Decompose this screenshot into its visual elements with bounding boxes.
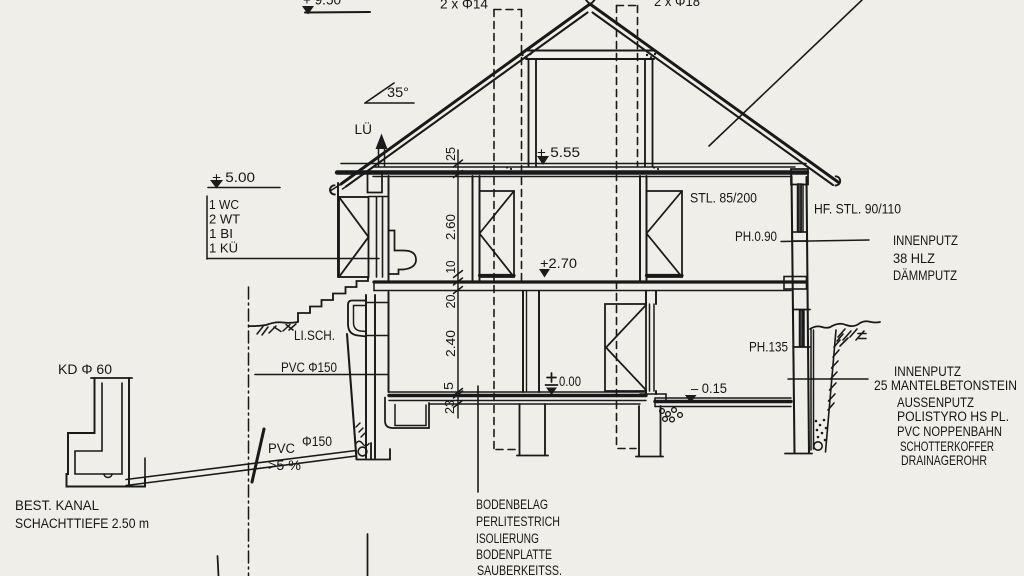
svg-text:DÄMMPUTZ: DÄMMPUTZ: [893, 268, 957, 283]
svg-text:KD Φ 60: KD Φ 60: [58, 362, 112, 377]
svg-text:DRAINAGEROHR: DRAINAGEROHR: [901, 453, 987, 468]
svg-text:23: 23: [443, 400, 457, 414]
svg-text:PVC Φ150: PVC Φ150: [281, 360, 337, 375]
svg-text:2 x Φ18: 2 x Φ18: [654, 0, 700, 9]
svg-text:35°: 35°: [387, 85, 409, 100]
svg-text:LI.SCH.: LI.SCH.: [294, 328, 335, 343]
svg-text:BODENBELAG: BODENBELAG: [476, 497, 548, 512]
svg-text:INNENPUTZ: INNENPUTZ: [894, 364, 961, 379]
svg-text:HF. STL. 90/110: HF. STL. 90/110: [814, 202, 901, 217]
svg-text:>5 %: >5 %: [268, 458, 301, 473]
svg-text:AUSSENPUTZ: AUSSENPUTZ: [897, 395, 974, 410]
svg-text:25: 25: [444, 147, 458, 161]
svg-text:INNENPUTZ: INNENPUTZ: [893, 233, 958, 248]
svg-text:LÜ: LÜ: [355, 122, 373, 137]
svg-text:PVC: PVC: [268, 441, 295, 456]
svg-text:PERLITESTRICH: PERLITESTRICH: [476, 514, 560, 529]
svg-text:1 KÜ: 1 KÜ: [209, 242, 238, 256]
svg-text:1 BI: 1 BI: [209, 227, 233, 241]
svg-text:PVC NOPPENBAHN: PVC NOPPENBAHN: [897, 424, 1002, 439]
svg-text:SCHOTTERKOFFER: SCHOTTERKOFFER: [900, 439, 994, 454]
svg-text:Φ150: Φ150: [302, 434, 332, 449]
svg-text:STL. 85/200: STL. 85/200: [690, 191, 757, 206]
svg-text:+ 5.55: + 5.55: [537, 145, 580, 160]
svg-text:BEST. KANAL: BEST. KANAL: [15, 498, 99, 513]
svg-text:0.00: 0.00: [559, 374, 581, 389]
svg-text:2.60: 2.60: [444, 214, 458, 240]
svg-text:– 0.15: – 0.15: [691, 381, 727, 396]
svg-text:10: 10: [444, 260, 458, 273]
svg-text:SAUBERKEITSS.: SAUBERKEITSS.: [477, 563, 562, 576]
svg-text:20: 20: [444, 294, 458, 308]
svg-text:PH.135: PH.135: [749, 340, 788, 355]
svg-text:+ 5.00: + 5.00: [212, 170, 255, 185]
svg-text:1 WC: 1 WC: [209, 198, 239, 212]
svg-text:+ 9.50: + 9.50: [303, 0, 341, 8]
svg-text:+2.70: +2.70: [540, 256, 577, 271]
svg-text:2 x Φ14: 2 x Φ14: [440, 0, 488, 12]
svg-text:2.40: 2.40: [444, 330, 458, 357]
svg-text:25 MANTELBETONSTEIN: 25 MANTELBETONSTEIN: [874, 378, 1017, 393]
svg-text:BODENPLATTE: BODENPLATTE: [476, 547, 552, 562]
svg-text:5: 5: [442, 382, 456, 390]
svg-text:ISOLIERUNG: ISOLIERUNG: [476, 531, 539, 546]
svg-text:SCHACHTTIEFE 2.50 m: SCHACHTTIEFE 2.50 m: [15, 516, 149, 531]
svg-text:POLISTYRO HS PL.: POLISTYRO HS PL.: [897, 409, 1009, 424]
svg-text:38 HLZ: 38 HLZ: [893, 251, 935, 266]
svg-text:PH.0.90: PH.0.90: [735, 229, 777, 244]
svg-text:2 WT: 2 WT: [209, 213, 240, 227]
